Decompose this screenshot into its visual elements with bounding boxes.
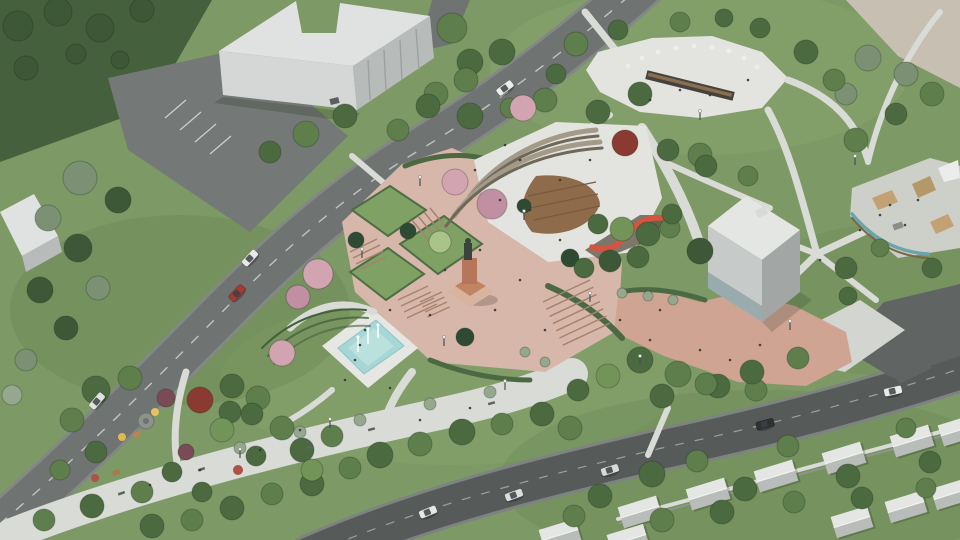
- tree: [738, 166, 758, 186]
- tree: [303, 259, 333, 289]
- person-dot: [649, 339, 652, 342]
- person-dot: [519, 279, 522, 282]
- statue-pedestal: [462, 258, 477, 284]
- person-dot: [559, 239, 562, 242]
- gazebo-top: [143, 418, 149, 424]
- tree: [612, 130, 638, 156]
- person-dot: [679, 89, 682, 92]
- tree: [261, 483, 283, 505]
- tree: [643, 291, 653, 301]
- person-dot: [389, 309, 392, 312]
- tree: [63, 161, 97, 195]
- tree: [437, 13, 467, 43]
- person-dot: [819, 259, 822, 262]
- person-dot: [709, 94, 712, 97]
- person-dot: [759, 344, 762, 347]
- tree: [449, 419, 475, 445]
- pergola-dot: [692, 44, 697, 49]
- person-dot: [429, 314, 432, 317]
- umbrella-yellow: [151, 408, 159, 416]
- statue-head: [465, 238, 471, 244]
- flower-bed: [233, 465, 243, 475]
- tree: [301, 459, 323, 481]
- tree: [105, 187, 131, 213]
- tree: [628, 82, 652, 106]
- tree: [246, 446, 266, 466]
- tree: [740, 360, 764, 384]
- person-dot: [619, 319, 622, 322]
- tree: [86, 276, 110, 300]
- person-dot: [729, 359, 732, 362]
- tree: [294, 426, 306, 438]
- person-dot: [649, 99, 652, 102]
- tree: [293, 121, 319, 147]
- tree: [668, 295, 678, 305]
- tree: [567, 379, 589, 401]
- tree: [416, 94, 440, 118]
- person-dot: [889, 204, 892, 207]
- tree: [558, 416, 582, 440]
- pergola-dot: [656, 50, 661, 55]
- tree: [787, 347, 809, 369]
- tree: [484, 386, 496, 398]
- person-dot: [879, 214, 882, 217]
- person-dot: [494, 309, 497, 312]
- statue-figure: [464, 243, 472, 260]
- tree: [783, 491, 805, 513]
- umbrella-yellow: [118, 433, 126, 441]
- tree: [269, 340, 295, 366]
- tree: [442, 169, 468, 195]
- tree: [650, 508, 674, 532]
- tree: [429, 231, 451, 253]
- person-dot: [259, 449, 262, 452]
- person-dot: [479, 249, 482, 252]
- tree: [86, 14, 114, 42]
- person-dot: [559, 179, 562, 182]
- tree: [33, 509, 55, 531]
- person-dot: [589, 159, 592, 162]
- tree: [530, 402, 554, 426]
- person-dot: [859, 229, 862, 232]
- tree: [27, 277, 53, 303]
- tree: [387, 119, 409, 141]
- tree: [533, 88, 557, 112]
- tree: [588, 484, 612, 508]
- tree: [457, 103, 483, 129]
- tree: [241, 403, 263, 425]
- tree: [710, 500, 734, 524]
- pergola-dot: [626, 64, 631, 69]
- person-dot: [504, 144, 507, 147]
- tree: [695, 155, 717, 177]
- tree: [60, 408, 84, 432]
- tree: [686, 450, 708, 472]
- pergola-dot: [727, 49, 732, 54]
- tree: [140, 514, 164, 538]
- tree: [333, 104, 357, 128]
- tree: [286, 285, 310, 309]
- tree: [44, 0, 72, 26]
- tree: [639, 461, 665, 487]
- person-dot: [474, 169, 477, 172]
- jet-splash: [356, 335, 359, 338]
- tree: [157, 389, 175, 407]
- tree: [733, 477, 757, 501]
- person-dot: [699, 349, 702, 352]
- tree: [636, 222, 660, 246]
- pergola-dot: [755, 65, 760, 70]
- tree: [54, 316, 78, 340]
- tree: [650, 384, 674, 408]
- tree: [270, 416, 294, 440]
- tree: [627, 246, 649, 268]
- tree: [321, 425, 343, 447]
- tree: [130, 0, 154, 22]
- tree: [715, 9, 733, 27]
- person-dot: [359, 344, 362, 347]
- tree: [563, 505, 585, 527]
- tree: [35, 205, 61, 231]
- tree: [839, 287, 857, 305]
- tree: [339, 457, 361, 479]
- tree: [477, 189, 507, 219]
- person-dot: [444, 269, 447, 272]
- tree: [835, 257, 857, 279]
- tree: [851, 487, 873, 509]
- person-dot: [917, 199, 920, 202]
- pergola-dot: [710, 45, 715, 50]
- flower-bed: [91, 474, 99, 482]
- tree: [871, 239, 889, 257]
- pergola-dot: [674, 46, 679, 51]
- tree: [687, 238, 713, 264]
- tree: [354, 414, 366, 426]
- person-dot: [419, 419, 422, 422]
- render-viewport: [0, 0, 960, 540]
- tree: [118, 366, 142, 390]
- person-dot: [149, 484, 152, 487]
- tree: [187, 387, 213, 413]
- park-masterplan-render: [0, 0, 960, 540]
- person-dot: [199, 469, 202, 472]
- tree: [608, 20, 628, 40]
- jet-splash: [366, 327, 369, 330]
- tree: [400, 223, 416, 239]
- tree: [220, 496, 244, 520]
- person-dot: [299, 429, 302, 432]
- tree: [259, 141, 281, 163]
- tree: [408, 432, 432, 456]
- pergola-dot: [640, 56, 645, 61]
- person-dot: [747, 79, 750, 82]
- tree: [290, 438, 314, 462]
- tree: [750, 18, 770, 38]
- tree: [586, 100, 610, 124]
- tree: [610, 217, 634, 241]
- tree: [424, 398, 436, 410]
- tree: [348, 232, 364, 248]
- tree: [588, 214, 608, 234]
- person-dot: [344, 379, 347, 382]
- tree: [15, 349, 37, 371]
- person-dot: [529, 209, 532, 212]
- tree: [670, 12, 690, 32]
- tree: [520, 347, 530, 357]
- tree: [178, 444, 194, 460]
- jet-splash: [376, 323, 379, 326]
- tree: [546, 64, 566, 84]
- tree: [510, 95, 536, 121]
- person-dot: [659, 309, 662, 312]
- tree: [3, 11, 33, 41]
- tree: [85, 441, 107, 463]
- tree: [2, 385, 22, 405]
- tree: [80, 494, 104, 518]
- tree: [662, 204, 682, 224]
- tree: [920, 82, 944, 106]
- tree: [836, 464, 860, 488]
- person-dot: [904, 224, 907, 227]
- tree: [367, 442, 393, 468]
- tree: [596, 364, 620, 388]
- tree: [456, 328, 474, 346]
- person-dot: [544, 329, 547, 332]
- pergola-dot: [742, 56, 747, 61]
- person-dot: [519, 159, 522, 162]
- tree: [617, 288, 627, 298]
- tree: [896, 418, 916, 438]
- tree: [210, 418, 234, 442]
- tree: [657, 139, 679, 161]
- tree: [50, 460, 70, 480]
- tree: [665, 361, 691, 387]
- tree: [894, 62, 918, 86]
- tree: [66, 44, 86, 64]
- tree: [916, 478, 936, 498]
- tree: [695, 373, 717, 395]
- tree: [181, 509, 203, 531]
- tree: [574, 258, 594, 278]
- tree: [777, 435, 799, 457]
- tree: [922, 258, 942, 278]
- tree: [64, 234, 92, 262]
- tree: [564, 32, 588, 56]
- person-dot: [354, 359, 357, 362]
- tree: [855, 45, 881, 71]
- tree: [844, 128, 868, 152]
- tree: [919, 451, 941, 473]
- person-dot: [499, 199, 502, 202]
- person-dot: [389, 387, 392, 390]
- tree: [794, 40, 818, 64]
- tree: [823, 69, 845, 91]
- person-dot: [364, 329, 367, 332]
- tree: [162, 462, 182, 482]
- person-dot: [469, 407, 472, 410]
- tree: [491, 413, 513, 435]
- tree: [489, 39, 515, 65]
- tree: [540, 357, 550, 367]
- tree: [885, 103, 907, 125]
- tree: [454, 68, 478, 92]
- tree: [599, 250, 621, 272]
- tree: [14, 56, 38, 80]
- tree: [220, 374, 244, 398]
- tree: [192, 482, 212, 502]
- tree: [111, 51, 129, 69]
